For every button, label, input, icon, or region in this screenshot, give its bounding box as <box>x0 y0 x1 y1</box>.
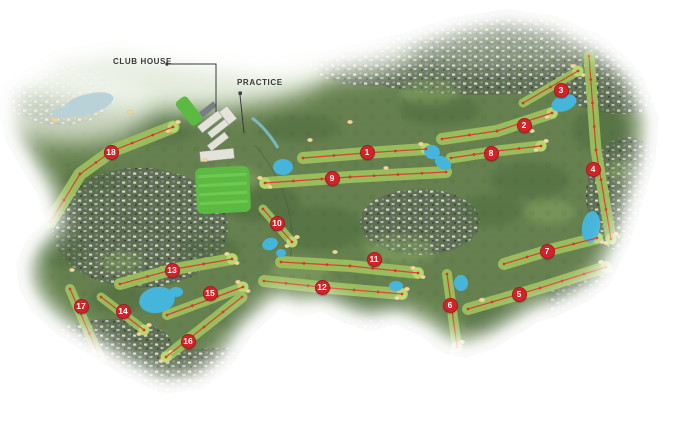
hole-marker-16[interactable]: 16 <box>181 334 196 349</box>
practice-field <box>195 166 251 215</box>
hole-marker-3[interactable]: 3 <box>554 83 569 98</box>
golf-course-map: CLUB HOUSE PRACTICE 12345678910111213141… <box>0 0 677 435</box>
hole-marker-8[interactable]: 8 <box>484 146 499 161</box>
hole-marker-4[interactable]: 4 <box>586 162 601 177</box>
hole-marker-17[interactable]: 17 <box>74 299 89 314</box>
practice-label: PRACTICE <box>237 78 283 87</box>
hole-marker-11[interactable]: 11 <box>367 252 382 267</box>
hole-marker-7[interactable]: 7 <box>540 244 555 259</box>
hole-marker-9[interactable]: 9 <box>325 171 340 186</box>
hole-marker-15[interactable]: 15 <box>203 286 218 301</box>
hole-marker-18[interactable]: 18 <box>104 145 119 160</box>
hole-marker-10[interactable]: 10 <box>270 216 285 231</box>
hole-marker-12[interactable]: 12 <box>315 280 330 295</box>
club-house-label: CLUB HOUSE <box>113 57 172 66</box>
hole-marker-2[interactable]: 2 <box>517 118 532 133</box>
hole-marker-13[interactable]: 13 <box>165 263 180 278</box>
hole-marker-6[interactable]: 6 <box>443 298 458 313</box>
hole-marker-5[interactable]: 5 <box>512 287 527 302</box>
hole-marker-1[interactable]: 1 <box>360 145 375 160</box>
hole-marker-14[interactable]: 14 <box>116 304 131 319</box>
course-terrain-art <box>0 0 677 435</box>
